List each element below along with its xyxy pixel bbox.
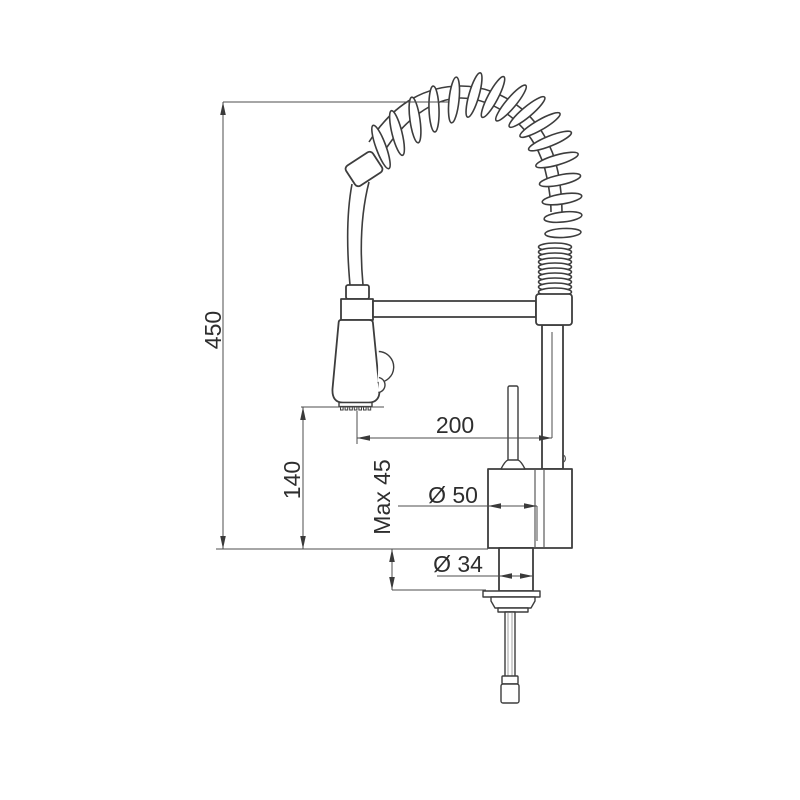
spring-base — [536, 294, 572, 325]
spout-arm — [373, 301, 536, 317]
dimension-spout-reach: 200 — [357, 332, 552, 444]
hose-clip — [344, 150, 384, 188]
nozzle-aerator — [339, 403, 372, 410]
dim-label-shank-diameter: Ø 34 — [433, 551, 483, 577]
lever-handle — [501, 386, 525, 469]
dim-label-overall-height: 450 — [200, 311, 226, 349]
supply-connector — [501, 676, 519, 703]
pullout-hose — [348, 182, 369, 285]
hose-holder — [346, 285, 369, 299]
dim-label-max-thickness: Max 45 — [369, 459, 395, 534]
spray-head-dock — [341, 299, 373, 320]
dim-label-spout-height: 140 — [279, 461, 305, 499]
mounting-shank — [499, 548, 533, 591]
spring-coil-spout — [368, 72, 582, 239]
drawing-canvas: 450 140 200 Max 45 Ø 50 Ø 34 — [0, 0, 800, 800]
spray-head — [332, 320, 393, 410]
faucet-dimension-drawing: 450 140 200 Max 45 Ø 50 Ø 34 — [0, 0, 800, 800]
dim-label-spout-reach: 200 — [436, 412, 474, 438]
spring-coil-stack — [539, 243, 572, 296]
threaded-rod — [505, 612, 515, 677]
dim-label-body-diameter: Ø 50 — [428, 482, 478, 508]
mounting-flange — [483, 591, 540, 612]
